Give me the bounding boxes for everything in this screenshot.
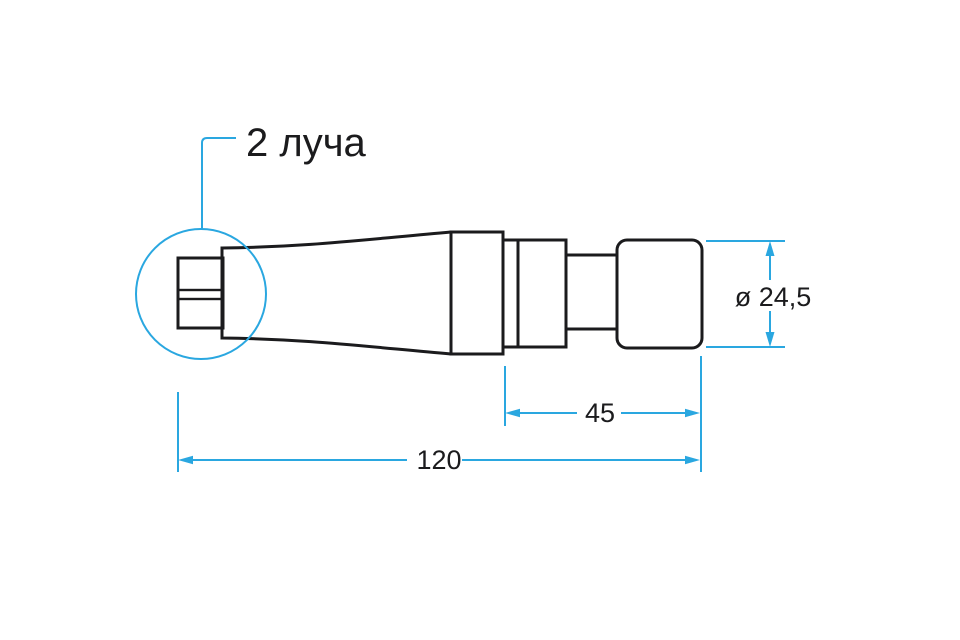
sonotrode-drawing: 2 луча ø 24,5 45 xyxy=(0,0,960,640)
diameter-value: ø 24,5 xyxy=(735,282,812,312)
dimension-diameter: ø 24,5 xyxy=(706,241,811,347)
arrow-left-icon xyxy=(505,409,520,417)
end-cap xyxy=(617,240,702,348)
arrow-left-icon xyxy=(178,456,193,464)
arrow-up-icon xyxy=(766,241,775,256)
callout-leader-line xyxy=(202,138,236,229)
neck-cylinder xyxy=(566,255,617,329)
dimension-front-section: 45 xyxy=(505,356,701,472)
callout-circle xyxy=(136,229,266,359)
tip-prongs-outline xyxy=(178,258,223,328)
callout: 2 луча xyxy=(136,121,367,359)
ring-section xyxy=(503,240,566,347)
arrow-down-icon xyxy=(766,332,775,347)
dimension-total-length: 120 xyxy=(178,392,700,475)
part-outline xyxy=(178,232,702,354)
flange xyxy=(451,232,503,354)
total-length-value: 120 xyxy=(416,445,461,475)
arrow-right-icon xyxy=(685,456,700,464)
front-section-value: 45 xyxy=(585,398,615,428)
arrow-right-icon xyxy=(685,409,700,417)
tip-slot xyxy=(178,290,223,299)
horn-body xyxy=(222,232,451,354)
callout-label: 2 луча xyxy=(246,121,367,165)
technical-drawing-canvas: 2 луча ø 24,5 45 xyxy=(0,0,960,640)
